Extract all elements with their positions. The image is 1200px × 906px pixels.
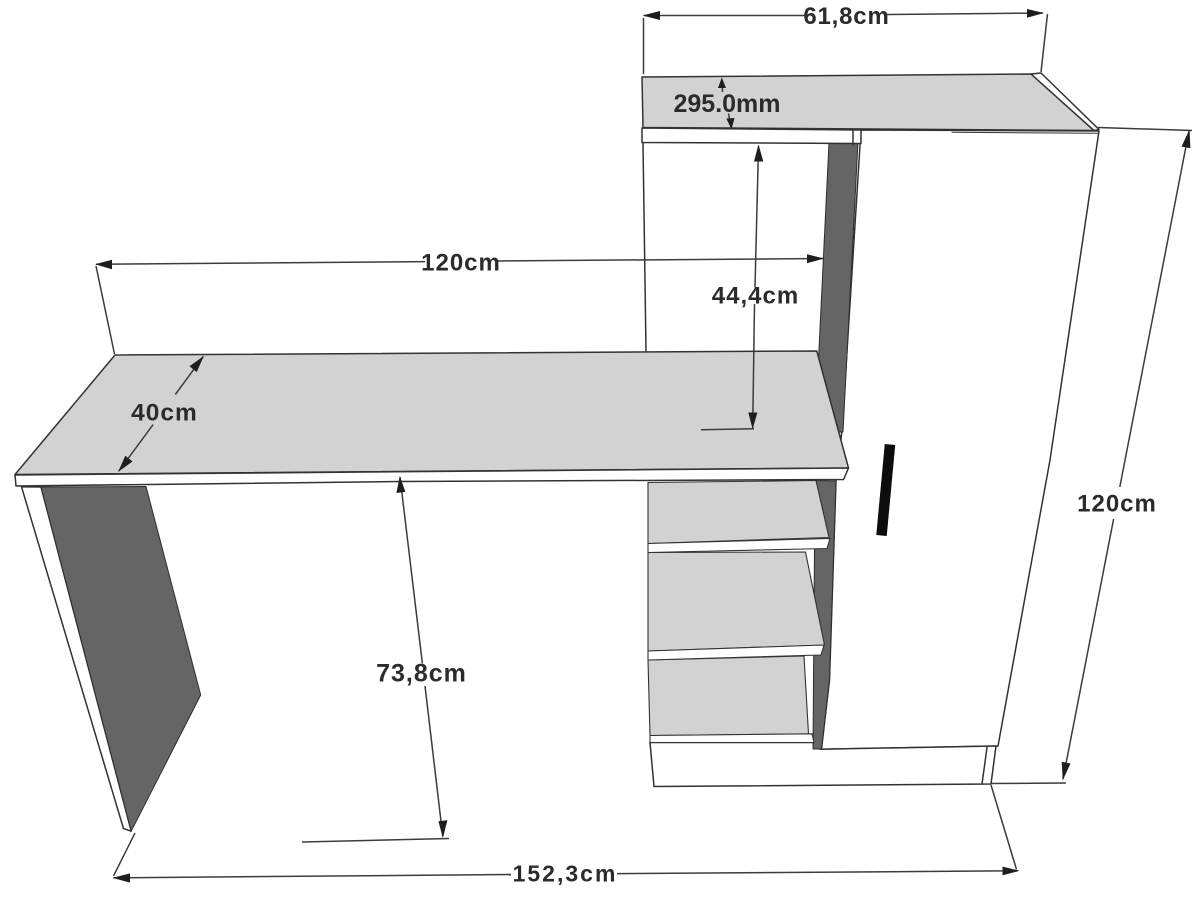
svg-text:73,8cm: 73,8cm — [376, 660, 467, 688]
svg-text:152,3cm: 152,3cm — [513, 861, 618, 887]
svg-text:61,8cm: 61,8cm — [803, 3, 889, 30]
svg-text:120cm: 120cm — [421, 250, 501, 277]
svg-text:120cm: 120cm — [1077, 491, 1157, 518]
svg-text:40cm: 40cm — [131, 399, 198, 426]
svg-text:44,4cm: 44,4cm — [712, 283, 799, 310]
svg-text:295.0mm: 295.0mm — [673, 90, 780, 118]
